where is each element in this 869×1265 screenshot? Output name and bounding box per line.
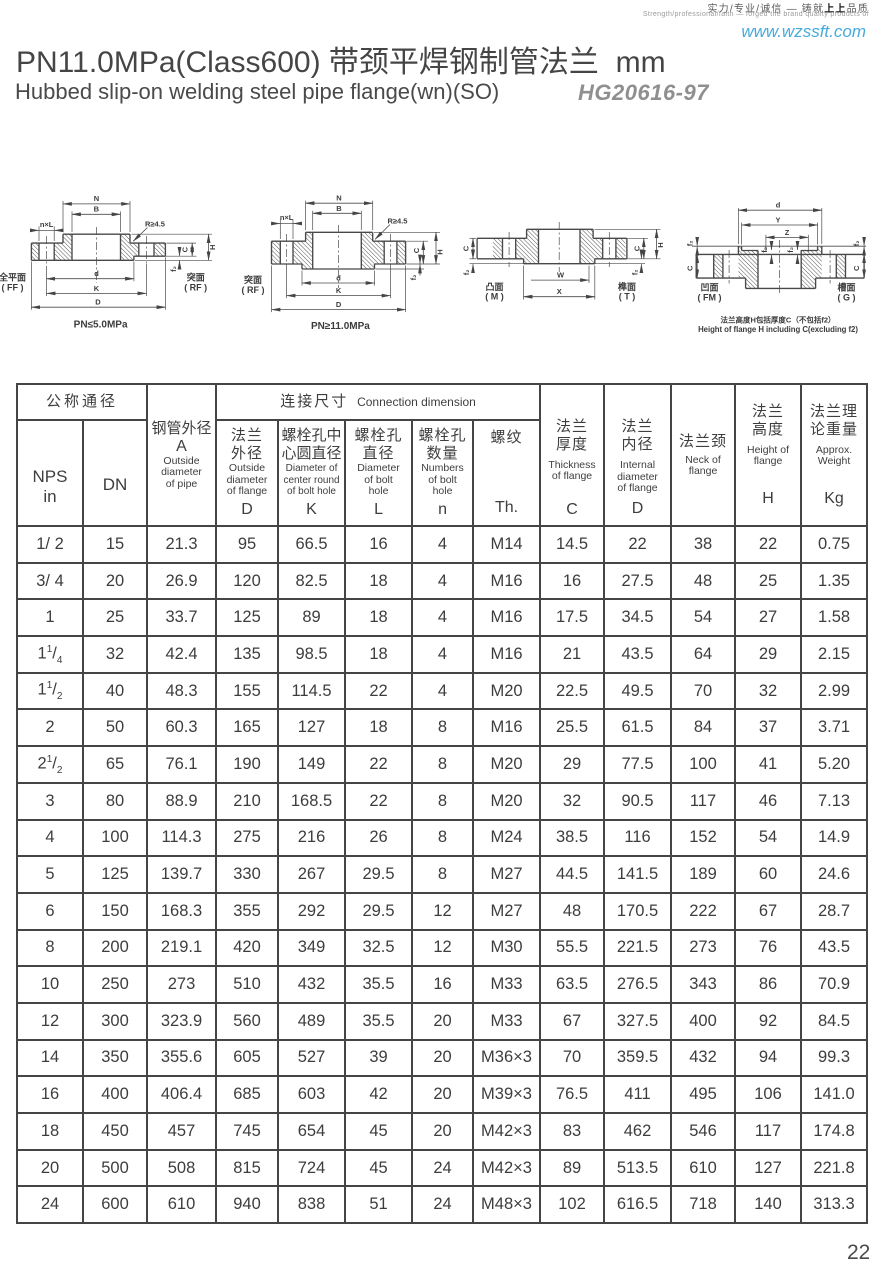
svg-text:PN≥11.0MPa: PN≥11.0MPa: [311, 321, 370, 332]
svg-text:( RF ): ( RF ): [242, 285, 265, 295]
svg-text:W: W: [557, 271, 565, 280]
svg-text:f₂: f₂: [462, 269, 471, 275]
svg-text:f₂: f₂: [630, 269, 639, 275]
svg-text:f₂: f₂: [685, 240, 694, 246]
svg-text:Z: Z: [785, 228, 790, 237]
svg-text:H: H: [436, 249, 445, 254]
svg-text:d: d: [776, 201, 781, 210]
svg-text:C: C: [632, 245, 641, 251]
svg-text:C: C: [852, 265, 861, 271]
svg-text:PN≤5.0MPa: PN≤5.0MPa: [74, 319, 128, 330]
svg-text:f₂: f₂: [852, 240, 861, 246]
svg-text:( FM ): ( FM ): [698, 292, 722, 302]
svg-text:C: C: [685, 265, 694, 271]
svg-text:d: d: [336, 274, 341, 283]
svg-text:f₂: f₂: [409, 275, 418, 281]
svg-text:法兰高度H包括厚度C（不包括f2）: 法兰高度H包括厚度C（不包括f2）: [720, 314, 835, 324]
svg-text:f₂: f₂: [760, 247, 769, 253]
svg-text:C: C: [181, 246, 190, 252]
svg-text:f₂: f₂: [786, 247, 795, 253]
svg-text:D: D: [336, 300, 342, 309]
svg-text:( T ): ( T ): [619, 292, 636, 302]
svg-text:全平面: 全平面: [0, 272, 26, 283]
svg-text:凸面: 凸面: [485, 282, 503, 292]
svg-text:B: B: [94, 205, 100, 214]
svg-text:( RF ): ( RF ): [184, 283, 207, 293]
svg-text:N: N: [336, 194, 341, 203]
svg-text:d: d: [94, 269, 99, 278]
svg-text:n×L: n×L: [40, 220, 54, 229]
svg-text:K: K: [336, 286, 342, 295]
svg-text:D: D: [95, 298, 101, 307]
svg-text:( G ): ( G ): [838, 292, 856, 302]
svg-text:R≥4.5: R≥4.5: [145, 219, 165, 228]
svg-text:榫面: 榫面: [617, 281, 636, 292]
svg-text:n×L: n×L: [280, 213, 294, 222]
svg-text:Height of flange H including C: Height of flange H including C(excluding…: [698, 325, 858, 334]
svg-text:K: K: [94, 284, 100, 293]
svg-text:( M ): ( M ): [485, 292, 504, 302]
svg-text:Y: Y: [775, 216, 780, 225]
svg-text:突面: 突面: [187, 272, 205, 283]
svg-text:C: C: [412, 247, 421, 253]
svg-text:C: C: [461, 245, 470, 251]
svg-text:N: N: [94, 194, 99, 203]
svg-text:B: B: [336, 204, 342, 213]
svg-text:H: H: [208, 245, 217, 250]
svg-text:X: X: [557, 287, 562, 296]
svg-text:( FF ): ( FF ): [2, 283, 24, 293]
svg-text:槽面: 槽面: [837, 282, 855, 293]
svg-text:f₂: f₂: [169, 266, 178, 272]
svg-text:凹面: 凹面: [700, 283, 718, 293]
svg-text:R≥4.5: R≥4.5: [388, 216, 408, 225]
svg-text:突面: 突面: [244, 274, 262, 285]
svg-text:H: H: [656, 242, 665, 247]
